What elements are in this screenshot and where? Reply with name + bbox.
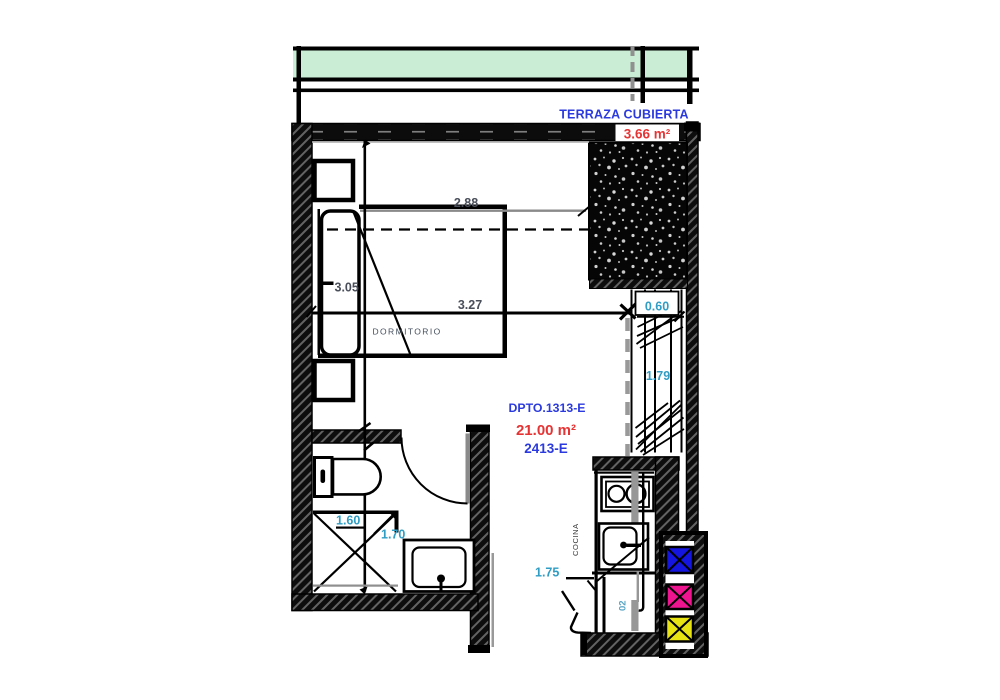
svg-text:2.88: 2.88 <box>454 196 478 210</box>
svg-text:1.75: 1.75 <box>535 566 559 580</box>
svg-text:21.00 m²: 21.00 m² <box>516 422 576 439</box>
svg-text:DPTO.1313-E: DPTO.1313-E <box>508 401 585 415</box>
svg-text:2413-E: 2413-E <box>524 441 568 456</box>
svg-text:TERRAZA CUBIERTA: TERRAZA CUBIERTA <box>559 108 689 122</box>
svg-text:02: 02 <box>618 600 629 611</box>
svg-text:0.60: 0.60 <box>645 300 669 314</box>
svg-text:1.70: 1.70 <box>381 528 405 542</box>
svg-text:DORMITORIO: DORMITORIO <box>373 327 442 337</box>
svg-text:COCINA: COCINA <box>571 523 580 556</box>
svg-text:3.05: 3.05 <box>335 281 359 295</box>
svg-text:1.79: 1.79 <box>646 369 670 383</box>
svg-text:3.27: 3.27 <box>458 298 482 312</box>
svg-text:3.66 m²: 3.66 m² <box>624 127 671 142</box>
svg-text:1.60: 1.60 <box>336 514 360 528</box>
